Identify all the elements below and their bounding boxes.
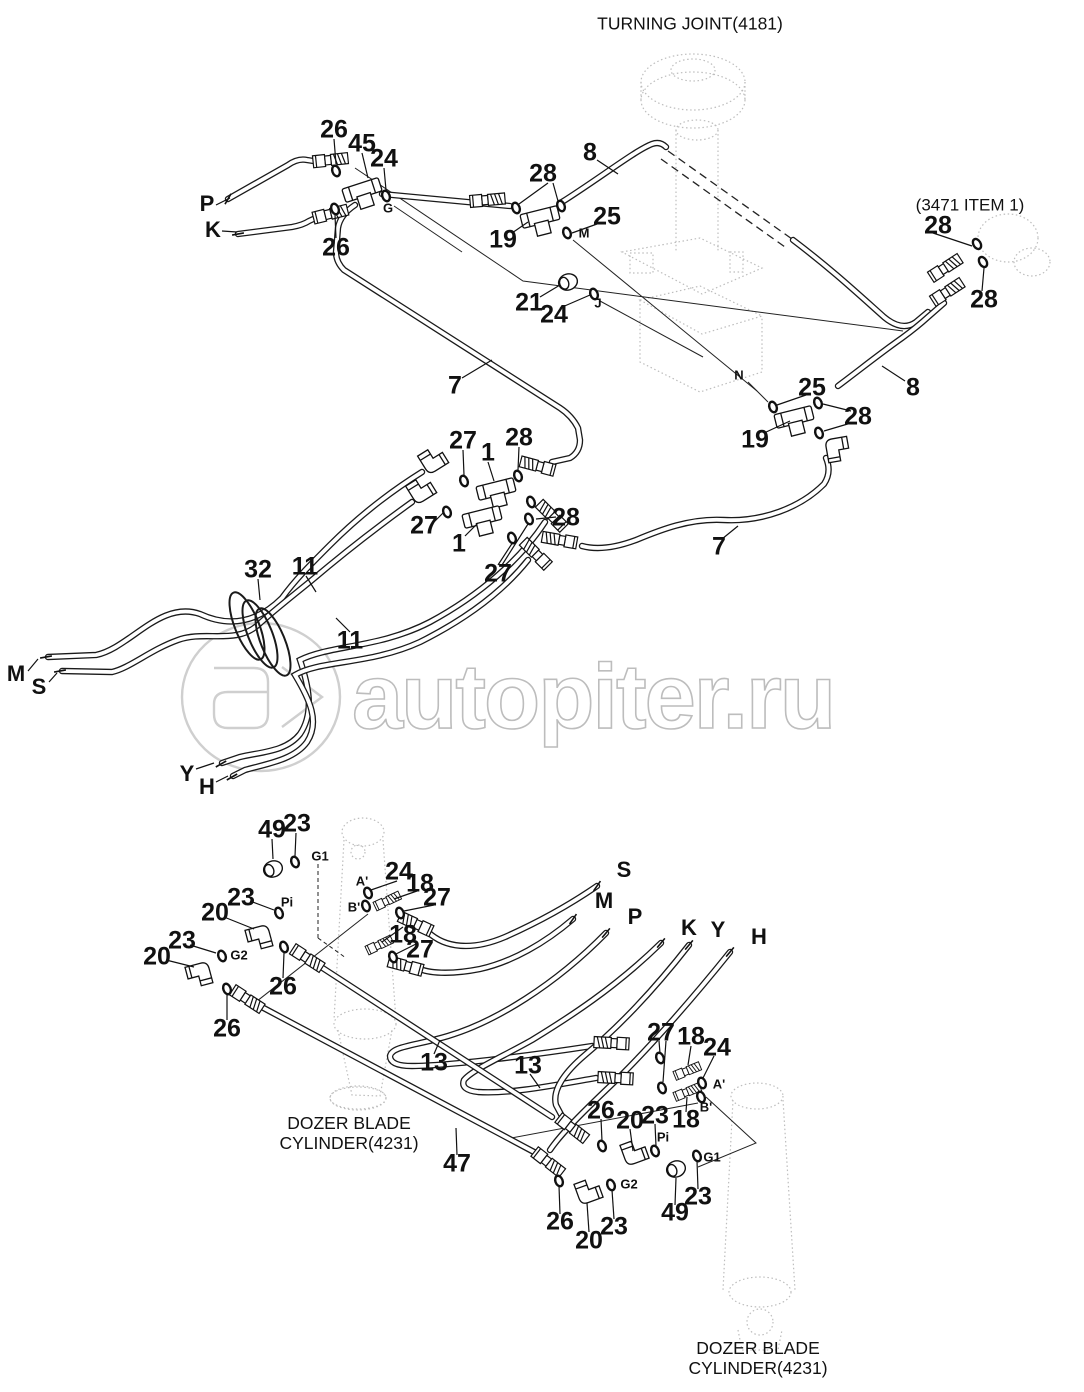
part-number-label-11: 11	[337, 629, 363, 654]
part-number-label-27: 27	[410, 514, 438, 539]
port-letter-label-H: H	[751, 926, 767, 948]
port-letter-label-Y: Y	[180, 763, 195, 785]
part-number-label-28: 28	[529, 162, 557, 187]
part-number-label-27: 27	[449, 429, 477, 454]
part-number-label-8: 8	[583, 141, 597, 166]
sub-port-label-B': B'	[348, 901, 360, 914]
part-number-label-20: 20	[616, 1109, 644, 1134]
port-letter-label-P: P	[200, 193, 215, 215]
caption-dozer-blade-right: DOZER BLADE CYLINDER(4231)	[688, 1338, 827, 1378]
port-letter-label-K: K	[205, 219, 221, 241]
part-number-label-24: 24	[370, 147, 398, 172]
part-number-label-20: 20	[143, 945, 171, 970]
part-number-label-28: 28	[552, 506, 580, 531]
caption-dozer-blade-left: DOZER BLADE CYLINDER(4231)	[279, 1113, 418, 1153]
plug-49	[664, 1158, 687, 1180]
part-number-label-23: 23	[641, 1104, 669, 1129]
tee-fitting-19	[520, 206, 563, 239]
part-number-label-18: 18	[672, 1108, 700, 1133]
part-number-label-28: 28	[844, 405, 872, 430]
sub-port-label-G1: G1	[703, 1151, 720, 1164]
sub-port-label-G1: G1	[311, 850, 328, 863]
part-number-label-23: 23	[227, 886, 255, 911]
elbow-fitting	[825, 436, 851, 462]
parts-diagram-page: TURNING JOINT(4181) (3471 ITEM 1) DOZER …	[0, 0, 1084, 1392]
part-number-label-24: 24	[540, 303, 568, 328]
part-number-label-26: 26	[322, 236, 350, 261]
part-number-label-21: 21	[515, 291, 543, 316]
sub-port-label-G: G	[383, 202, 393, 215]
part-number-label-28: 28	[924, 214, 952, 239]
ghost-stipple	[330, 1087, 386, 1109]
sub-port-label-Pi: Pi	[657, 1131, 669, 1144]
port-letter-label-P: P	[628, 906, 643, 928]
part-number-label-11: 11	[292, 555, 318, 580]
caption-line: DOZER BLADE	[688, 1338, 827, 1358]
hose-end-ticks	[40, 194, 734, 957]
elbow-20	[620, 1137, 649, 1166]
part-number-label-27: 27	[647, 1021, 675, 1046]
part-number-label-32: 32	[244, 558, 272, 583]
part-number-label-26: 26	[587, 1099, 615, 1124]
hose-fitting	[598, 1071, 634, 1085]
port-letter-label-K: K	[681, 917, 697, 939]
sub-port-label-B': B'	[700, 1101, 712, 1114]
adapter-21	[556, 271, 579, 292]
part-number-label-1: 1	[452, 532, 466, 557]
port-letter-label-M: M	[7, 663, 25, 685]
part-number-label-27: 27	[423, 886, 451, 911]
part-number-label-7: 7	[448, 374, 462, 399]
diagram-title: TURNING JOINT(4181)	[597, 15, 783, 33]
ghost-flange-3471	[978, 214, 1050, 276]
part-number-label-26: 26	[320, 118, 348, 143]
part-number-label-20: 20	[201, 901, 229, 926]
hidden-hose-dashes	[661, 151, 792, 247]
sub-port-label-A': A'	[713, 1078, 725, 1091]
port-letter-label-M: M	[595, 890, 613, 912]
part-number-label-27: 27	[484, 562, 512, 587]
part-number-label-23: 23	[684, 1185, 712, 1210]
part-number-label-26: 26	[269, 975, 297, 1000]
hose-fitting	[289, 944, 325, 973]
part-number-label-7: 7	[712, 535, 726, 560]
caption-line: CYLINDER(4231)	[279, 1133, 418, 1153]
hose-fitting	[519, 456, 556, 477]
sub-port-label-J: J	[594, 297, 601, 310]
elbow-20	[574, 1176, 603, 1205]
part-number-label-13: 13	[514, 1054, 542, 1079]
watermark-text: autopiter.ru	[352, 645, 834, 750]
port-letter-label-Y: Y	[711, 919, 726, 941]
port-letter-label-S: S	[32, 676, 47, 698]
part-number-label-24: 24	[703, 1036, 731, 1061]
part-number-label-8: 8	[906, 376, 920, 401]
fitting-18	[673, 1061, 702, 1080]
caption-line: DOZER BLADE	[279, 1113, 418, 1133]
part-number-label-23: 23	[283, 812, 311, 837]
sub-port-label-M: M	[579, 227, 590, 240]
part-number-label-28: 28	[970, 288, 998, 313]
sub-port-label-G2: G2	[230, 949, 247, 962]
part-number-label-19: 19	[489, 228, 517, 253]
part-number-label-18: 18	[677, 1025, 705, 1050]
part-number-label-28: 28	[505, 426, 533, 451]
tee-fitting-19	[774, 406, 817, 439]
part-number-label-25: 25	[798, 376, 826, 401]
part-number-label-20: 20	[575, 1229, 603, 1254]
port-letter-label-S: S	[617, 859, 632, 881]
part-number-label-23: 23	[168, 929, 196, 954]
plug-49	[261, 858, 284, 880]
part-number-label-26: 26	[213, 1017, 241, 1042]
caption-line: CYLINDER(4231)	[688, 1358, 827, 1378]
part-number-label-19: 19	[741, 428, 769, 453]
part-number-label-47: 47	[443, 1152, 471, 1177]
hose-fitting	[312, 152, 348, 168]
part-number-label-25: 25	[593, 205, 621, 230]
part-number-label-26: 26	[546, 1210, 574, 1235]
tee-fitting-1	[462, 506, 505, 539]
sub-port-label-A': A'	[356, 875, 368, 888]
part-number-label-1: 1	[481, 441, 495, 466]
elbow-20	[245, 924, 273, 951]
sub-port-label-G2: G2	[620, 1178, 637, 1191]
sub-port-label-N: N	[734, 369, 743, 382]
part-number-label-27: 27	[406, 938, 434, 963]
part-number-label-49: 49	[258, 818, 286, 843]
port-letter-label-H: H	[199, 776, 215, 798]
ghost-turning-joint	[622, 54, 762, 392]
part-number-label-23: 23	[600, 1215, 628, 1240]
part-number-label-13: 13	[420, 1051, 448, 1076]
hose-fitting	[541, 531, 578, 549]
hose-fitting	[594, 1036, 630, 1050]
sub-port-label-Pi: Pi	[281, 896, 293, 909]
